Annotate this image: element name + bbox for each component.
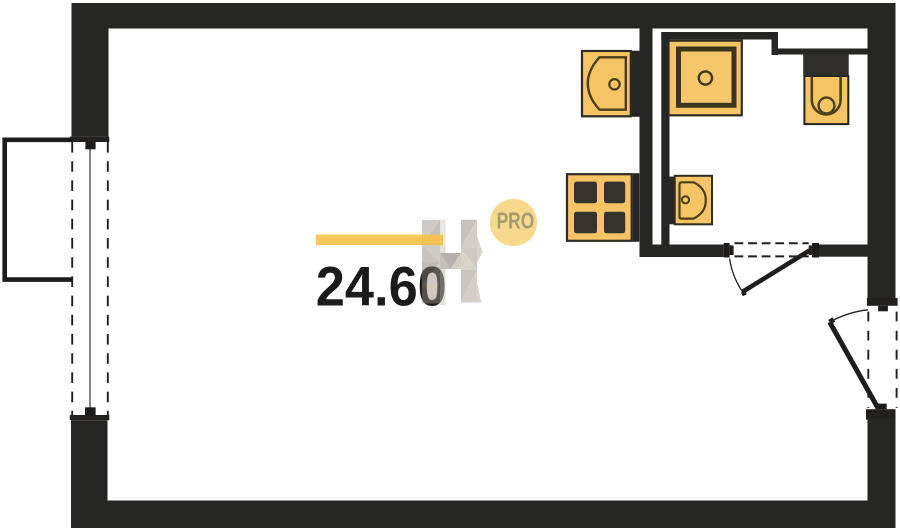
svg-text:PRO: PRO (497, 207, 535, 233)
